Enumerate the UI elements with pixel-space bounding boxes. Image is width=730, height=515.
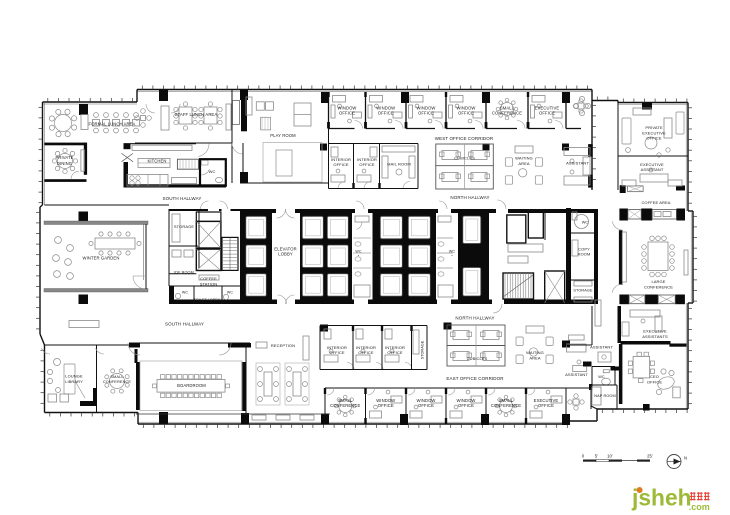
svg-text:LARGE: LARGE <box>651 279 665 284</box>
svg-text:OFFICE: OFFICE <box>647 380 662 385</box>
svg-text:COFFEE: COFFEE <box>200 276 217 281</box>
svg-text:ASSISTANTS: ASSISTANTS <box>642 334 668 339</box>
svg-text:OFFICE: OFFICE <box>646 136 661 141</box>
svg-text:RECEPTION: RECEPTION <box>271 343 295 348</box>
svg-text:STORAGE: STORAGE <box>174 224 194 229</box>
svg-text:.com: .com <box>689 502 710 512</box>
svg-text:WINDOW: WINDOW <box>338 105 357 110</box>
svg-text:CONFERENCE: CONFERENCE <box>491 403 521 408</box>
svg-text:LOUNGE: LOUNGE <box>65 374 83 379</box>
svg-text:OFFICE: OFFICE <box>378 403 394 408</box>
svg-text:NORTH HALLWAY: NORTH HALLWAY <box>450 195 489 200</box>
svg-text:COFFEE AREA: COFFEE AREA <box>641 200 670 205</box>
svg-text:STAFF LUNCH AREA: STAFF LUNCH AREA <box>175 112 218 117</box>
svg-text:WINDOW: WINDOW <box>457 105 476 110</box>
svg-text:OFFICE: OFFICE <box>339 111 355 116</box>
svg-text:CONFERENCE: CONFERENCE <box>644 285 673 290</box>
svg-text:BOARDROOM: BOARDROOM <box>177 383 206 388</box>
svg-text:OFFICE: OFFICE <box>378 111 394 116</box>
svg-text:OFFICE: OFFICE <box>418 111 434 116</box>
svg-text:10': 10' <box>607 454 613 459</box>
svg-text:SMALL: SMALL <box>338 398 353 403</box>
svg-text:ASSISTANT: ASSISTANT <box>590 344 613 349</box>
svg-text:OFFICE: OFFICE <box>539 111 555 116</box>
svg-text:OFFICE: OFFICE <box>458 403 474 408</box>
svg-text:EAST OFFICE CORRIDOR: EAST OFFICE CORRIDOR <box>446 376 504 381</box>
svg-text:LOBBY: LOBBY <box>278 252 293 257</box>
svg-text:SOUTH HALLWAY: SOUTH HALLWAY <box>165 322 204 327</box>
svg-text:ASSISTANT: ASSISTANT <box>565 372 588 377</box>
svg-text:OFFICE: OFFICE <box>329 350 344 355</box>
svg-text:ROOM: ROOM <box>578 252 591 257</box>
svg-text:CEO: CEO <box>650 374 659 379</box>
svg-text:WAITING: WAITING <box>515 156 533 161</box>
svg-text:NAP ROOM: NAP ROOM <box>594 394 615 398</box>
svg-text:SMALL: SMALL <box>499 398 514 403</box>
svg-text:OFFICE: OFFICE <box>387 350 402 355</box>
svg-text:LIBRARY: LIBRARY <box>65 379 83 384</box>
svg-text:ASSISTANT: ASSISTANT <box>566 160 589 165</box>
svg-text:WINDOW: WINDOW <box>457 398 476 403</box>
svg-text:OFFICE: OFFICE <box>458 111 474 116</box>
svg-text:WINDOW: WINDOW <box>376 398 395 403</box>
svg-text:WINDOW: WINDOW <box>376 105 395 110</box>
svg-text:25': 25' <box>647 454 653 459</box>
svg-text:STORAGE: STORAGE <box>421 340 425 359</box>
svg-text:OFFICE: OFFICE <box>359 162 374 167</box>
svg-text:PLAY ROOM: PLAY ROOM <box>270 133 296 138</box>
svg-text:WC: WC <box>449 249 455 253</box>
svg-text:NORTH HALLWAY: NORTH HALLWAY <box>455 316 494 321</box>
svg-text:CONFERENCE: CONFERENCE <box>330 403 360 408</box>
svg-text:WC: WC <box>182 291 188 295</box>
svg-text:IDF ROOM: IDF ROOM <box>174 270 194 274</box>
svg-text:ASSISTANT: ASSISTANT <box>641 167 664 172</box>
svg-text:N: N <box>684 456 687 461</box>
svg-text:FORMAL LUNCH AREA: FORMAL LUNCH AREA <box>89 121 136 126</box>
svg-text:SMALL: SMALL <box>500 105 515 110</box>
svg-text:EXECUTIVE: EXECUTIVE <box>534 398 559 403</box>
svg-text:EXECUTIVE: EXECUTIVE <box>643 329 667 334</box>
svg-text:EXECUTIVE: EXECUTIVE <box>535 105 560 110</box>
svg-text:WC: WC <box>598 375 605 379</box>
svg-text:OFFICE: OFFICE <box>538 403 554 408</box>
svg-text:ELEVATOR: ELEVATOR <box>274 246 296 251</box>
svg-text:WC: WC <box>355 249 361 253</box>
svg-text:OFFICE: OFFICE <box>418 403 434 408</box>
svg-text:WINTER GARDEN: WINTER GARDEN <box>83 255 120 260</box>
svg-text:AREA: AREA <box>518 161 530 166</box>
svg-text:WINDOW: WINDOW <box>417 398 436 403</box>
svg-text:OFFICE: OFFICE <box>358 350 373 355</box>
svg-text:DINING: DINING <box>57 161 72 166</box>
svg-text:WINDOW: WINDOW <box>417 105 436 110</box>
svg-text:WC: WC <box>209 169 216 174</box>
svg-text:STORAGE: STORAGE <box>573 288 593 292</box>
svg-text:CONFERENCE: CONFERENCE <box>492 111 522 116</box>
svg-text:CUBICLES: CUBICLES <box>454 155 475 160</box>
svg-text:5': 5' <box>595 454 598 459</box>
svg-text:AREA: AREA <box>529 356 541 361</box>
svg-text:SOUTH HALLWAY: SOUTH HALLWAY <box>163 196 202 201</box>
svg-text:CUBICLES: CUBICLES <box>467 356 488 361</box>
svg-text:TOILET LOBBY: TOILET LOBBY <box>194 298 221 302</box>
svg-text:WEST OFFICE CORRIDOR: WEST OFFICE CORRIDOR <box>435 136 494 141</box>
svg-text:PRIVATE: PRIVATE <box>56 155 74 160</box>
svg-text:WAITING: WAITING <box>526 350 544 355</box>
svg-text:WC: WC <box>582 220 589 224</box>
svg-text:KITCHEN: KITCHEN <box>147 158 166 163</box>
svg-text:CONFERENCE: CONFERENCE <box>103 379 132 384</box>
svg-text:MAIL ROOM: MAIL ROOM <box>387 161 411 166</box>
svg-text:OFFICE: OFFICE <box>333 162 348 167</box>
svg-text:WC: WC <box>227 291 233 295</box>
